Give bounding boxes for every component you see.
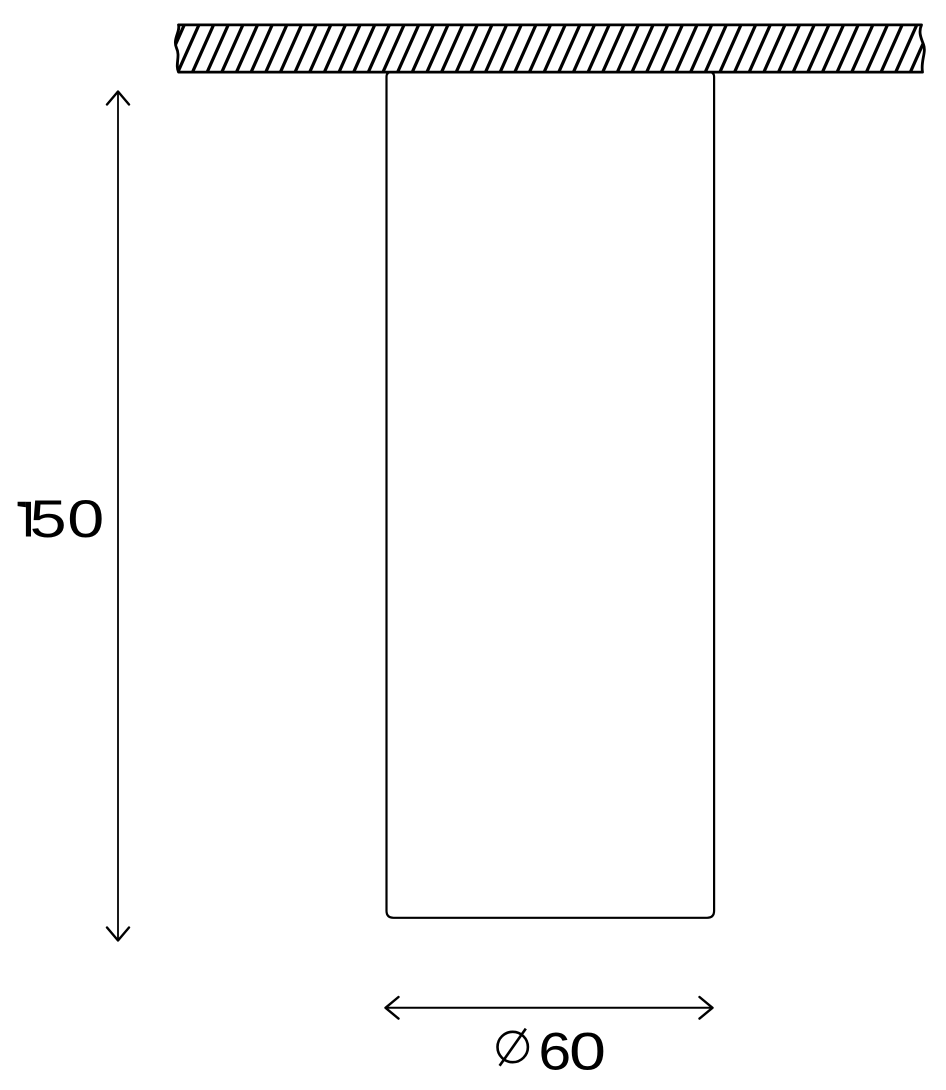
svg-text:5: 5 xyxy=(30,490,67,549)
svg-text:0: 0 xyxy=(67,490,104,549)
svg-text:0: 0 xyxy=(569,1023,606,1082)
svg-text:6: 6 xyxy=(538,1023,571,1082)
